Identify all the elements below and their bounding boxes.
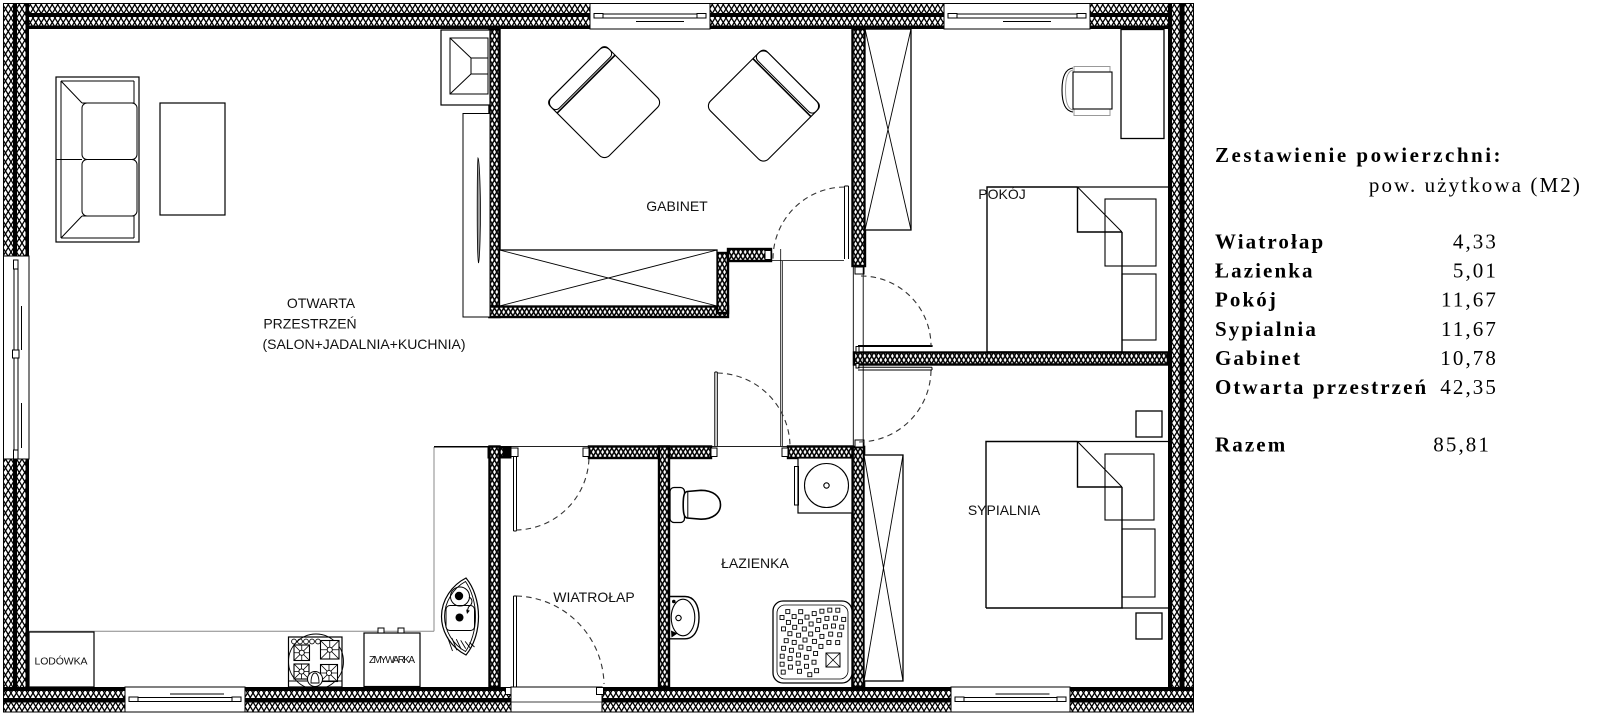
svg-text:Razem: Razem [1215,433,1287,457]
svg-text:Zestawienie powierzchni:: Zestawienie powierzchni: [1215,143,1503,167]
svg-text:pow. użytkowa (M2): pow. użytkowa (M2) [1369,173,1582,197]
svg-text:ZMYWARKA: ZMYWARKA [369,655,415,666]
svg-text:SYPIALNIA: SYPIALNIA [968,502,1041,518]
svg-text:OTWARTA: OTWARTA [287,295,356,311]
svg-text:Wiatrołap: Wiatrołap [1215,230,1325,254]
svg-text:11,67: 11,67 [1441,288,1498,312]
svg-text:5,01: 5,01 [1453,259,1498,283]
svg-text:10,78: 10,78 [1440,346,1498,370]
svg-text:LODÓWKA: LODÓWKA [35,655,88,668]
svg-text:(SALON+JADALNIA+KUCHNIA): (SALON+JADALNIA+KUCHNIA) [262,336,465,352]
svg-text:GABINET: GABINET [646,198,708,214]
svg-text:WIATROŁAP: WIATROŁAP [553,589,634,605]
svg-text:ŁAZIENKA: ŁAZIENKA [721,555,789,571]
svg-text:Sypialnia: Sypialnia [1215,317,1318,341]
svg-text:Gabinet: Gabinet [1215,346,1302,370]
svg-text:Łazienka: Łazienka [1215,259,1315,283]
svg-text:42,35: 42,35 [1440,375,1498,399]
svg-text:POKÓJ: POKÓJ [978,186,1025,202]
svg-text:Otwarta przestrzeń: Otwarta przestrzeń [1215,375,1428,399]
svg-text:11,67: 11,67 [1441,317,1498,341]
svg-text:4,33: 4,33 [1453,230,1498,254]
svg-text:Pokój: Pokój [1215,288,1278,312]
svg-text:PRZESTRZEŃ: PRZESTRZEŃ [263,316,356,332]
svg-text:85,81: 85,81 [1433,433,1491,457]
